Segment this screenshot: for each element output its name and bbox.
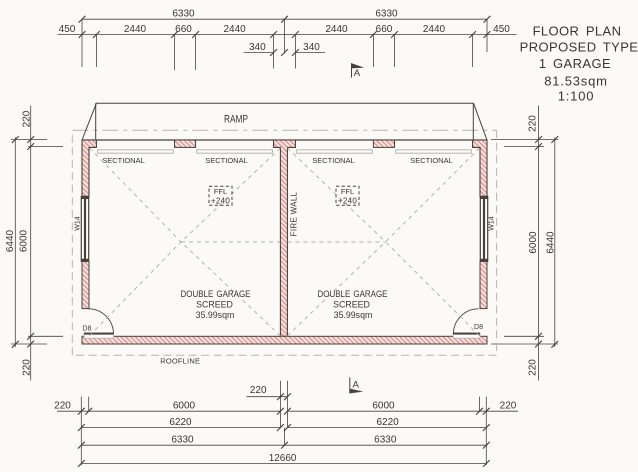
- svg-text:35.99sqm: 35.99sqm: [196, 310, 235, 320]
- svg-text:6220: 6220: [376, 417, 399, 428]
- svg-text:6000: 6000: [528, 231, 539, 254]
- svg-text:660: 660: [175, 24, 192, 35]
- svg-text:6440: 6440: [5, 229, 16, 252]
- svg-text:220: 220: [528, 115, 539, 132]
- svg-text:220: 220: [22, 110, 33, 127]
- svg-text:A: A: [353, 379, 360, 390]
- svg-text:SECTIONAL: SECTIONAL: [205, 156, 248, 165]
- svg-text:D8: D8: [474, 324, 483, 331]
- svg-text:DOUBLE GARAGE: DOUBLE GARAGE: [318, 289, 388, 299]
- svg-text:SCREED: SCREED: [333, 300, 370, 310]
- svg-text:DOUBLE GARAGE: DOUBLE GARAGE: [181, 289, 251, 299]
- svg-text:FIRE WALL: FIRE WALL: [289, 191, 298, 236]
- svg-text:A: A: [354, 68, 361, 79]
- svg-text:450: 450: [59, 24, 76, 35]
- svg-text:660: 660: [376, 24, 393, 35]
- svg-text:1:100: 1:100: [558, 88, 595, 103]
- svg-text:ROOFLINE: ROOFLINE: [160, 356, 200, 365]
- svg-text:6000: 6000: [19, 229, 30, 252]
- svg-text:12660: 12660: [269, 453, 297, 464]
- svg-text:6330: 6330: [171, 435, 194, 446]
- svg-text:SECTIONAL: SECTIONAL: [410, 156, 453, 165]
- svg-text:6000: 6000: [173, 401, 196, 412]
- svg-text:35.99sqm: 35.99sqm: [334, 310, 373, 320]
- svg-text:1 GARAGE: 1 GARAGE: [539, 56, 611, 71]
- svg-text:2440: 2440: [325, 24, 348, 35]
- svg-text:2440: 2440: [223, 24, 246, 35]
- svg-text:6440: 6440: [545, 231, 556, 254]
- svg-text:340: 340: [303, 42, 320, 53]
- svg-text:220: 220: [500, 401, 517, 412]
- svg-text:RAMP: RAMP: [224, 114, 248, 126]
- svg-text:SECTIONAL: SECTIONAL: [312, 156, 355, 165]
- svg-text:+240: +240: [338, 196, 357, 205]
- svg-text:220: 220: [250, 385, 267, 396]
- svg-text:SCREED: SCREED: [196, 300, 233, 310]
- svg-text:W14: W14: [489, 216, 496, 231]
- svg-text:220: 220: [54, 401, 71, 412]
- svg-text:6330: 6330: [172, 8, 195, 19]
- svg-text:220: 220: [528, 359, 539, 376]
- svg-text:FLOOR PLAN: FLOOR PLAN: [533, 23, 622, 38]
- svg-text:FFL: FFL: [214, 187, 227, 196]
- svg-text:PROPOSED TYPE: PROPOSED TYPE: [520, 40, 638, 55]
- svg-text:D8: D8: [82, 325, 91, 332]
- svg-text:2440: 2440: [423, 24, 446, 35]
- svg-text:FFL: FFL: [341, 187, 354, 196]
- svg-text:220: 220: [22, 359, 33, 376]
- svg-text:6220: 6220: [169, 417, 192, 428]
- svg-text:2440: 2440: [124, 24, 147, 35]
- svg-text:W14: W14: [74, 216, 81, 231]
- svg-text:6000: 6000: [372, 401, 395, 412]
- svg-text:+240: +240: [211, 196, 230, 205]
- svg-text:SECTIONAL: SECTIONAL: [102, 156, 145, 165]
- svg-text:340: 340: [249, 42, 266, 53]
- svg-text:6330: 6330: [374, 435, 397, 446]
- svg-text:6330: 6330: [375, 8, 398, 19]
- svg-text:81.53sqm: 81.53sqm: [544, 74, 608, 89]
- svg-text:450: 450: [493, 24, 510, 35]
